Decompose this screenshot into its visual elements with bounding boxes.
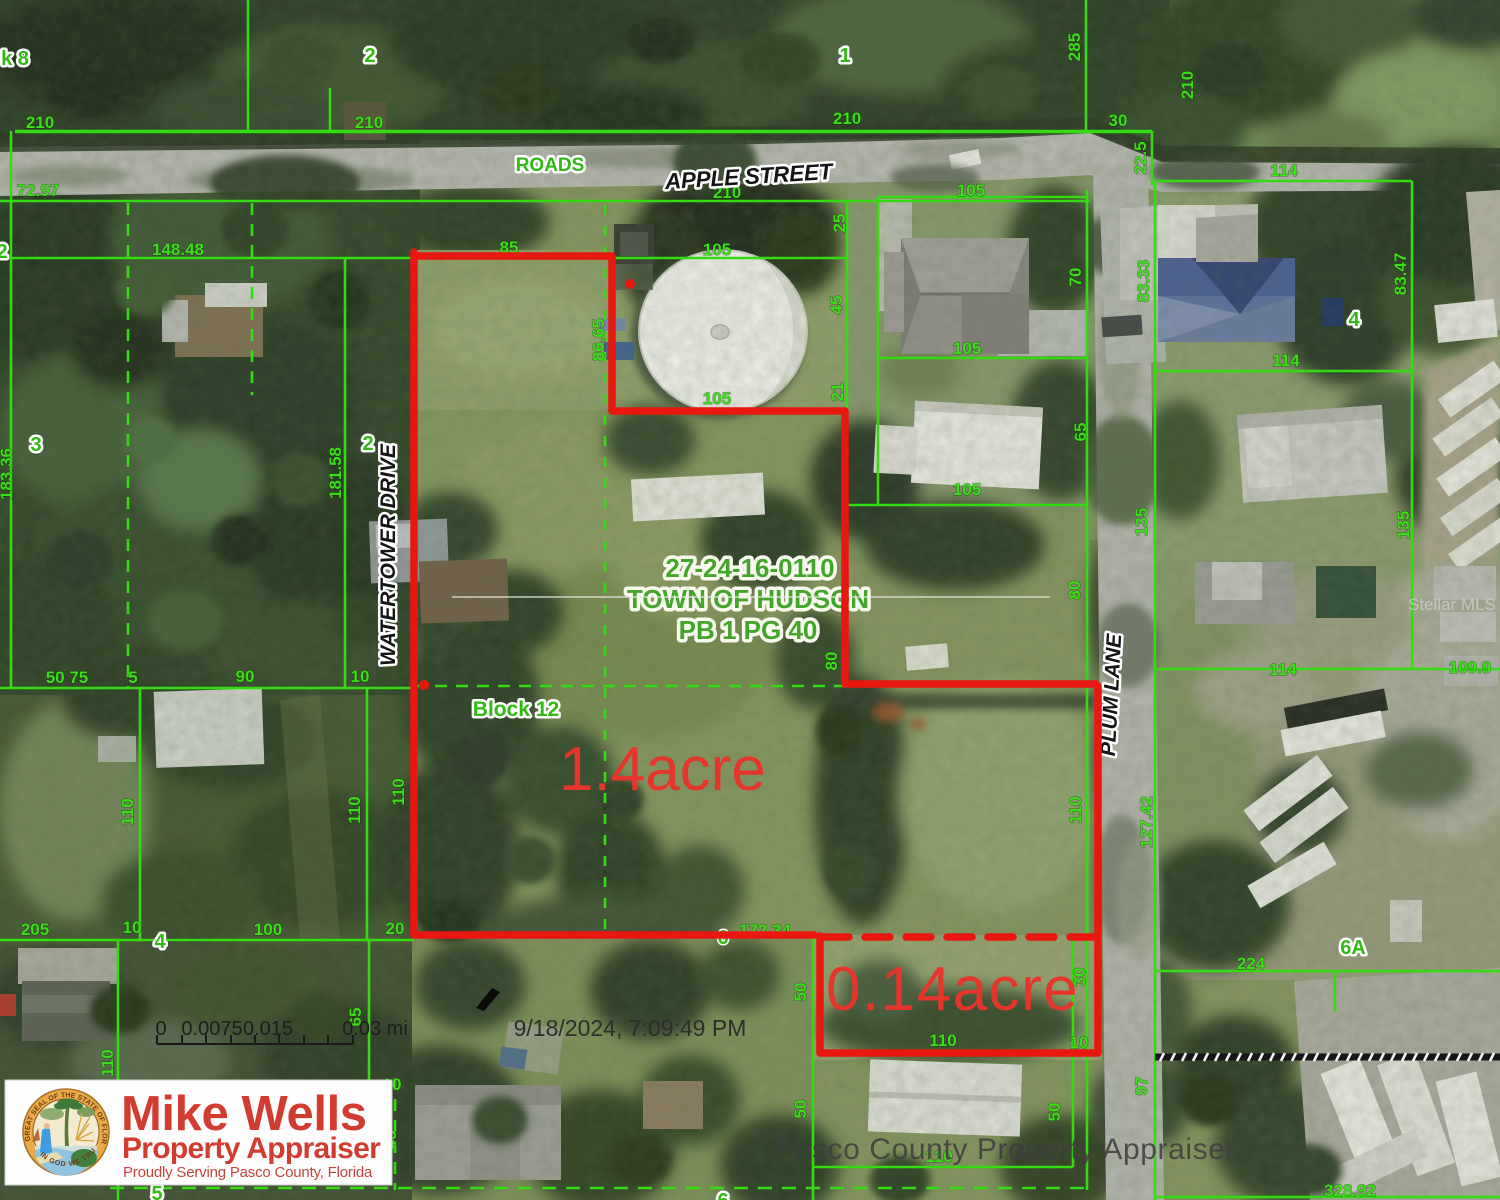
svg-text:328.92: 328.92 — [1324, 1181, 1376, 1200]
svg-text:5: 5 — [151, 1183, 162, 1200]
svg-text:PB 1 PG 40: PB 1 PG 40 — [679, 615, 818, 645]
svg-text:205: 205 — [21, 920, 49, 939]
svg-text:25: 25 — [830, 214, 849, 233]
svg-text:210: 210 — [833, 109, 861, 128]
svg-text:105: 105 — [957, 181, 985, 200]
svg-text:80: 80 — [822, 652, 841, 671]
svg-text:109.9: 109.9 — [1449, 658, 1492, 677]
svg-text:110: 110 — [118, 798, 137, 825]
svg-text:TOWN OF HUDSON: TOWN OF HUDSON — [627, 584, 869, 614]
svg-text:50 75: 50 75 — [46, 668, 89, 687]
svg-text:Stellar MLS: Stellar MLS — [1408, 595, 1496, 614]
svg-text:110: 110 — [345, 796, 364, 823]
svg-text:30: 30 — [1109, 111, 1128, 130]
svg-text:10: 10 — [351, 667, 370, 686]
svg-text:1.4acre: 1.4acre — [559, 735, 766, 804]
svg-text:83.33: 83.33 — [1134, 260, 1153, 303]
svg-text:210: 210 — [355, 113, 383, 132]
svg-text:27-24-16-0110: 27-24-16-0110 — [665, 553, 834, 583]
svg-text:135: 135 — [1394, 511, 1413, 539]
svg-text:183.36: 183.36 — [0, 448, 16, 500]
svg-text:110: 110 — [98, 1049, 117, 1076]
svg-text:72.97: 72.97 — [17, 181, 60, 200]
svg-text:224: 224 — [1237, 954, 1266, 973]
svg-text:83.47: 83.47 — [1391, 253, 1410, 296]
svg-text:Property Appraiser: Property Appraiser — [122, 1132, 381, 1165]
svg-text:97: 97 — [1132, 1077, 1151, 1096]
svg-text:90: 90 — [236, 667, 255, 686]
svg-text:114: 114 — [1270, 161, 1298, 180]
svg-text:20: 20 — [386, 919, 405, 938]
svg-text:21: 21 — [828, 383, 847, 402]
svg-text:114: 114 — [1272, 351, 1300, 370]
svg-text:105: 105 — [953, 480, 981, 499]
svg-text:86.65: 86.65 — [589, 319, 608, 362]
svg-text:50: 50 — [1045, 1103, 1064, 1122]
svg-text:2: 2 — [0, 241, 8, 263]
svg-text:105: 105 — [703, 240, 731, 259]
svg-text:110: 110 — [389, 778, 408, 805]
svg-text:105: 105 — [953, 339, 981, 358]
svg-text:k 8: k 8 — [1, 48, 29, 70]
svg-text:100: 100 — [254, 920, 282, 939]
svg-text:5: 5 — [128, 668, 137, 687]
svg-text:0.14acre: 0.14acre — [826, 955, 1079, 1024]
svg-text:70: 70 — [1066, 268, 1085, 287]
svg-text:110: 110 — [1066, 796, 1085, 823]
svg-text:148.48: 148.48 — [152, 240, 204, 259]
svg-text:45: 45 — [827, 296, 846, 315]
svg-text:4: 4 — [154, 931, 166, 953]
svg-text:4: 4 — [1348, 309, 1360, 331]
svg-text:2: 2 — [362, 433, 373, 455]
svg-text:Pasco County Property Appraise: Pasco County Property Appraiser — [774, 1133, 1236, 1166]
svg-text:65: 65 — [1071, 423, 1090, 442]
svg-text:0.015: 0.015 — [243, 1018, 293, 1040]
svg-text:6A: 6A — [1340, 937, 1366, 959]
svg-text:80: 80 — [1065, 581, 1084, 600]
svg-text:3: 3 — [30, 434, 41, 456]
svg-text:6: 6 — [717, 1190, 728, 1200]
svg-text:114: 114 — [1269, 660, 1297, 679]
svg-text:110: 110 — [929, 1031, 956, 1050]
svg-text:285: 285 — [1065, 33, 1084, 61]
svg-text:50: 50 — [791, 1100, 810, 1119]
svg-text:Proudly Serving Pasco County,: Proudly Serving Pasco County, Florida — [123, 1164, 373, 1181]
svg-text:1: 1 — [839, 45, 850, 67]
svg-text:105: 105 — [703, 389, 731, 408]
svg-text:Block 12: Block 12 — [473, 698, 559, 721]
svg-text:22.5: 22.5 — [1131, 141, 1150, 174]
svg-text:ROADS: ROADS — [516, 155, 585, 176]
svg-text:10: 10 — [123, 918, 142, 937]
svg-text:0.0075: 0.0075 — [181, 1018, 242, 1040]
svg-text:210: 210 — [1178, 71, 1197, 99]
svg-text:210: 210 — [26, 113, 54, 132]
svg-text:9/18/2024, 7:09:49 PM: 9/18/2024, 7:09:49 PM — [514, 1015, 747, 1041]
svg-text:WATERTOWER DRIVE: WATERTOWER DRIVE — [377, 443, 400, 666]
svg-text:50: 50 — [791, 983, 810, 1002]
svg-text:135: 135 — [1132, 508, 1151, 536]
svg-text:2: 2 — [364, 45, 375, 67]
svg-text:127.42: 127.42 — [1137, 796, 1156, 848]
svg-text:10: 10 — [1070, 1033, 1089, 1052]
svg-text:181.58: 181.58 — [326, 447, 345, 499]
